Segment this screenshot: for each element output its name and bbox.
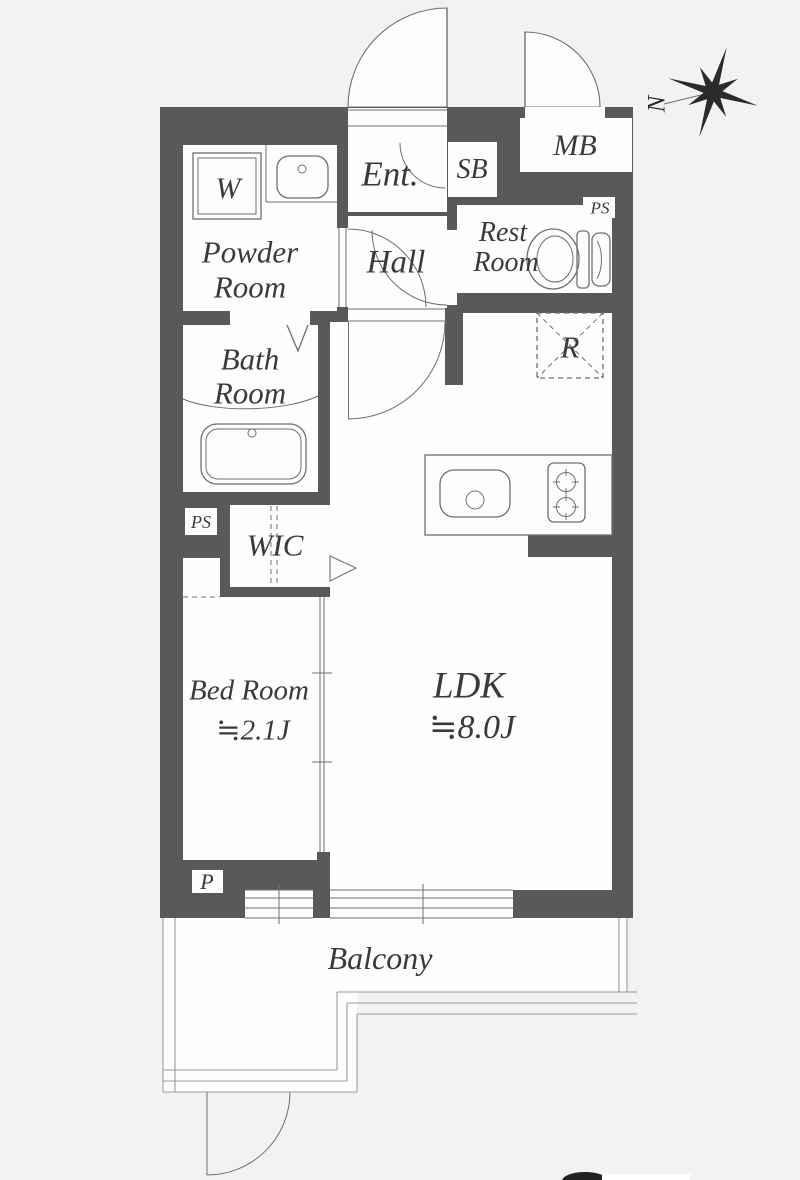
ldk-window — [330, 890, 513, 918]
label-bedroom-name: Bed Room — [189, 677, 309, 706]
label-powder-room-2: Room — [214, 272, 286, 303]
balcony-door — [207, 1092, 290, 1175]
label-powder-room-1: Powder — [202, 237, 298, 268]
wic-opening — [317, 505, 330, 587]
entrance-door-swing — [348, 8, 447, 107]
label-washer: W — [216, 174, 241, 204]
label-ps-top: PS — [591, 200, 610, 217]
meter-box-door-swing — [525, 32, 600, 107]
compass-icon — [664, 47, 758, 137]
label-rest-room-1: Rest — [479, 219, 527, 247]
room-ldk — [330, 322, 612, 890]
label-balcony: Balcony — [328, 942, 433, 974]
label-ps-left: PS — [191, 513, 211, 531]
hall-ldk-opening — [348, 308, 445, 322]
wall-stub — [445, 322, 463, 385]
mb-door-opening — [525, 107, 605, 118]
kitchen-wall-jog — [528, 535, 612, 557]
label-meter-box: MB — [553, 131, 596, 161]
bedroom-nook — [183, 558, 220, 597]
floor-plan: Powder Room W Ent. SB MB Hall Rest Room … — [0, 0, 800, 1180]
label-ldk-size: ≒8.0J — [429, 711, 515, 745]
restroom-door-opening — [447, 230, 457, 305]
logo-fragment — [562, 1172, 690, 1180]
label-ldk-name: LDK — [433, 668, 505, 705]
label-bath-room-2: Room — [214, 378, 286, 409]
rooms — [183, 107, 632, 918]
balcony-floor-left — [163, 992, 357, 1092]
label-bath-room-1: Bath — [221, 344, 280, 375]
label-parking: P — [200, 871, 213, 893]
label-fridge: R — [561, 332, 580, 363]
label-bedroom-size: ≒2.1J — [216, 717, 289, 746]
label-compass-north: N — [645, 96, 670, 113]
label-rest-room-2: Room — [473, 249, 538, 277]
label-shoe-box: SB — [456, 156, 487, 184]
label-entrance: Ent. — [361, 157, 418, 192]
label-hall: Hall — [367, 247, 426, 280]
label-wic: WIC — [247, 530, 304, 561]
bath-door-opening — [230, 311, 310, 325]
